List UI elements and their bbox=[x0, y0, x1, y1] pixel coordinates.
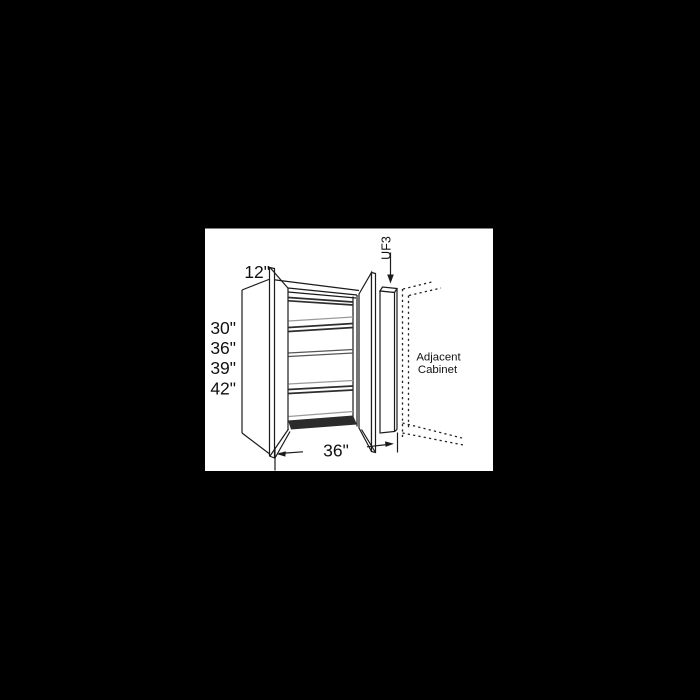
height-label-36: 36" bbox=[210, 338, 236, 358]
height-label-39: 39" bbox=[210, 358, 236, 378]
width-label: 36" bbox=[323, 441, 349, 461]
adjacent-cabinet-label-line1: Adjacent bbox=[416, 352, 461, 364]
depth-label: 12" bbox=[244, 262, 270, 282]
filler-strip bbox=[380, 287, 397, 433]
cabinet-spec-diagram: 12" 30" 36" 39" 42" 36" UF3 Adjacent Cab… bbox=[0, 0, 700, 700]
height-label-42: 42" bbox=[210, 379, 236, 399]
adjacent-cabinet-label-line2: Cabinet bbox=[418, 364, 458, 376]
filler-label: UF3 bbox=[380, 236, 394, 260]
right-door bbox=[359, 273, 376, 453]
height-label-30: 30" bbox=[210, 318, 236, 338]
